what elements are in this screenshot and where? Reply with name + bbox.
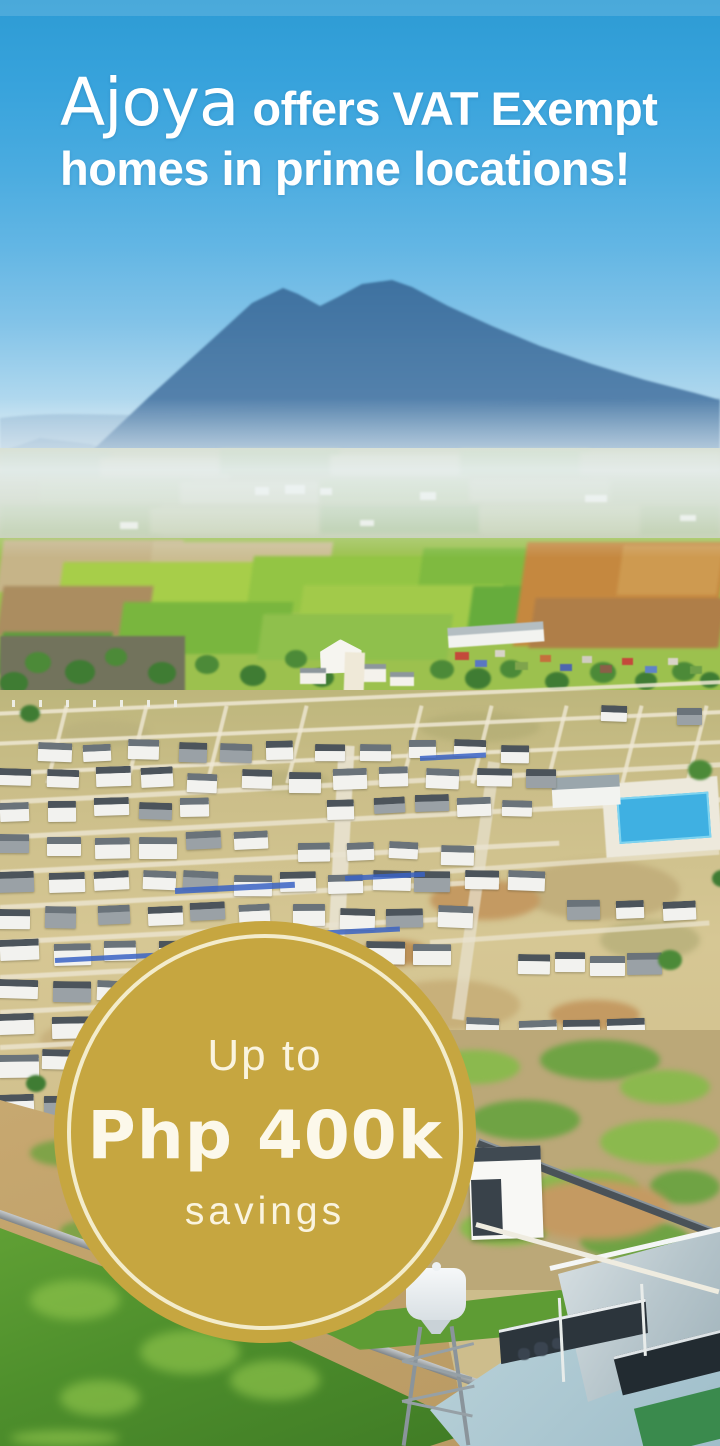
farmland-fields (0, 538, 720, 698)
gate-building (300, 668, 326, 684)
tower-brace (402, 1342, 475, 1363)
house (441, 845, 474, 866)
house (333, 768, 368, 790)
badge-line-amount: Php 400k (87, 1097, 442, 1174)
tree (195, 655, 219, 674)
house (186, 830, 222, 850)
house (347, 842, 375, 861)
house (289, 772, 321, 793)
house (501, 745, 529, 763)
headline-line1-text: offers VAT Exempt (252, 81, 657, 136)
house (426, 768, 460, 789)
house (128, 739, 159, 760)
house (179, 742, 208, 763)
house (590, 956, 625, 976)
headline-line2-text: homes in prime locations! (60, 141, 657, 196)
village-roof (540, 655, 551, 662)
house (53, 981, 91, 1002)
house (0, 938, 39, 961)
house (616, 900, 645, 919)
house (518, 954, 550, 975)
house (526, 769, 556, 788)
house (38, 742, 73, 762)
house (555, 952, 585, 972)
tree (65, 660, 95, 684)
pump-equipment (534, 1342, 548, 1356)
house (386, 908, 423, 928)
village-roof (515, 662, 528, 670)
house (220, 743, 253, 763)
house (94, 870, 130, 891)
tree (465, 668, 491, 689)
grass-highlight (60, 1380, 140, 1416)
house (139, 837, 177, 859)
village-roof (690, 666, 702, 674)
fence-post (120, 700, 123, 707)
house (0, 802, 29, 822)
house (413, 944, 451, 965)
grass-highlight (10, 1430, 120, 1446)
house (502, 800, 532, 817)
house (148, 906, 184, 926)
tree (430, 660, 454, 679)
village-roof (600, 665, 612, 673)
house (457, 797, 492, 817)
house (234, 830, 269, 850)
house (415, 794, 449, 812)
village-roof (668, 658, 678, 665)
house (508, 870, 546, 891)
pump-equipment (518, 1348, 530, 1360)
house (94, 797, 130, 816)
house (0, 871, 34, 893)
house (627, 953, 662, 975)
clubhouse (551, 774, 620, 808)
scrub-bush (470, 1100, 580, 1140)
tree (105, 648, 127, 666)
tower-leg (402, 1327, 423, 1446)
house (242, 769, 273, 789)
fence-post (66, 700, 69, 707)
house (83, 744, 112, 762)
house (340, 908, 376, 930)
house (0, 768, 31, 786)
scrub-bush (620, 1070, 710, 1104)
house (140, 766, 173, 788)
house (95, 837, 130, 859)
brand-logo: Ajoya (60, 64, 238, 141)
house (298, 843, 330, 862)
house (139, 802, 173, 820)
tree (240, 665, 266, 686)
village-roof (622, 658, 633, 665)
house (477, 768, 512, 787)
house (663, 900, 697, 921)
village-roof (560, 664, 572, 671)
house (190, 901, 226, 921)
fence-post (147, 700, 150, 707)
scrub-bush (600, 1120, 720, 1164)
house (567, 900, 600, 920)
house (438, 905, 474, 928)
house (360, 744, 391, 761)
house (0, 979, 38, 999)
house (45, 906, 76, 929)
house (327, 799, 354, 820)
horizon-haze (0, 398, 720, 558)
swimming-pool (616, 792, 711, 844)
house (315, 744, 345, 761)
fence-post (12, 700, 15, 707)
field-patch (528, 598, 720, 648)
house (677, 708, 702, 725)
house (0, 834, 29, 853)
tree (25, 652, 51, 673)
savings-badge: Up to Php 400k savings (54, 921, 476, 1343)
village-roof (582, 656, 592, 663)
badge-line-savings: savings (185, 1190, 345, 1234)
village-roof (645, 666, 657, 673)
house (465, 870, 499, 890)
tank-finial (432, 1262, 441, 1271)
grass-highlight (230, 1360, 320, 1400)
village-roof (455, 652, 469, 660)
house (96, 766, 132, 787)
headline: Ajoya offers VAT Exempt homes in prime l… (60, 64, 657, 196)
water-tower (392, 1268, 484, 1446)
ground-patch (420, 712, 540, 742)
grass-highlight (30, 1280, 120, 1320)
house (180, 797, 209, 817)
tree (658, 950, 682, 970)
tree (20, 705, 40, 722)
house (389, 841, 419, 859)
house (49, 872, 86, 893)
headline-line1: Ajoya offers VAT Exempt (60, 64, 657, 141)
fence-post (39, 700, 42, 707)
house (601, 705, 628, 722)
house (379, 766, 409, 787)
gate-building (390, 672, 414, 686)
house (98, 905, 131, 925)
house (48, 801, 76, 822)
house (0, 909, 30, 929)
house (47, 837, 81, 856)
tree (285, 650, 307, 668)
fence-post (93, 700, 96, 707)
promo-banner: Up to Php 400k savings Ajoya offers VAT … (0, 0, 720, 1446)
house (187, 773, 218, 793)
house (143, 870, 177, 890)
fence-post (174, 700, 177, 707)
house (374, 796, 406, 814)
house (47, 769, 80, 788)
village-roof (495, 650, 505, 657)
house (266, 740, 293, 760)
tree (712, 870, 720, 887)
village-roof (475, 660, 487, 667)
badge-line-up-to: Up to (207, 1031, 322, 1081)
